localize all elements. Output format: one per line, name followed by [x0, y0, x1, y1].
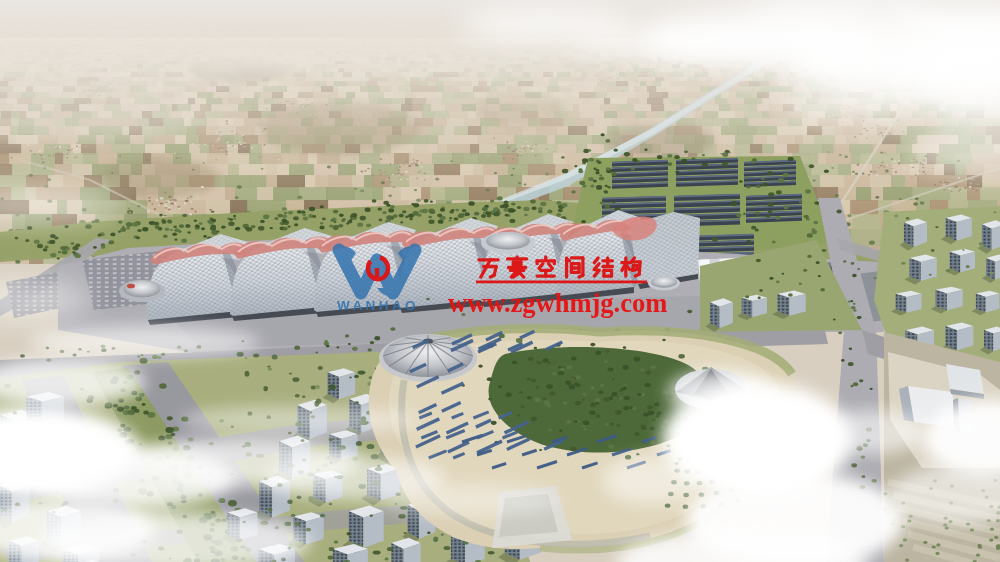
svg-text:www.zgwhmjg.com: www.zgwhmjg.com: [448, 288, 667, 318]
svg-text:WANHAO: WANHAO: [337, 298, 419, 313]
